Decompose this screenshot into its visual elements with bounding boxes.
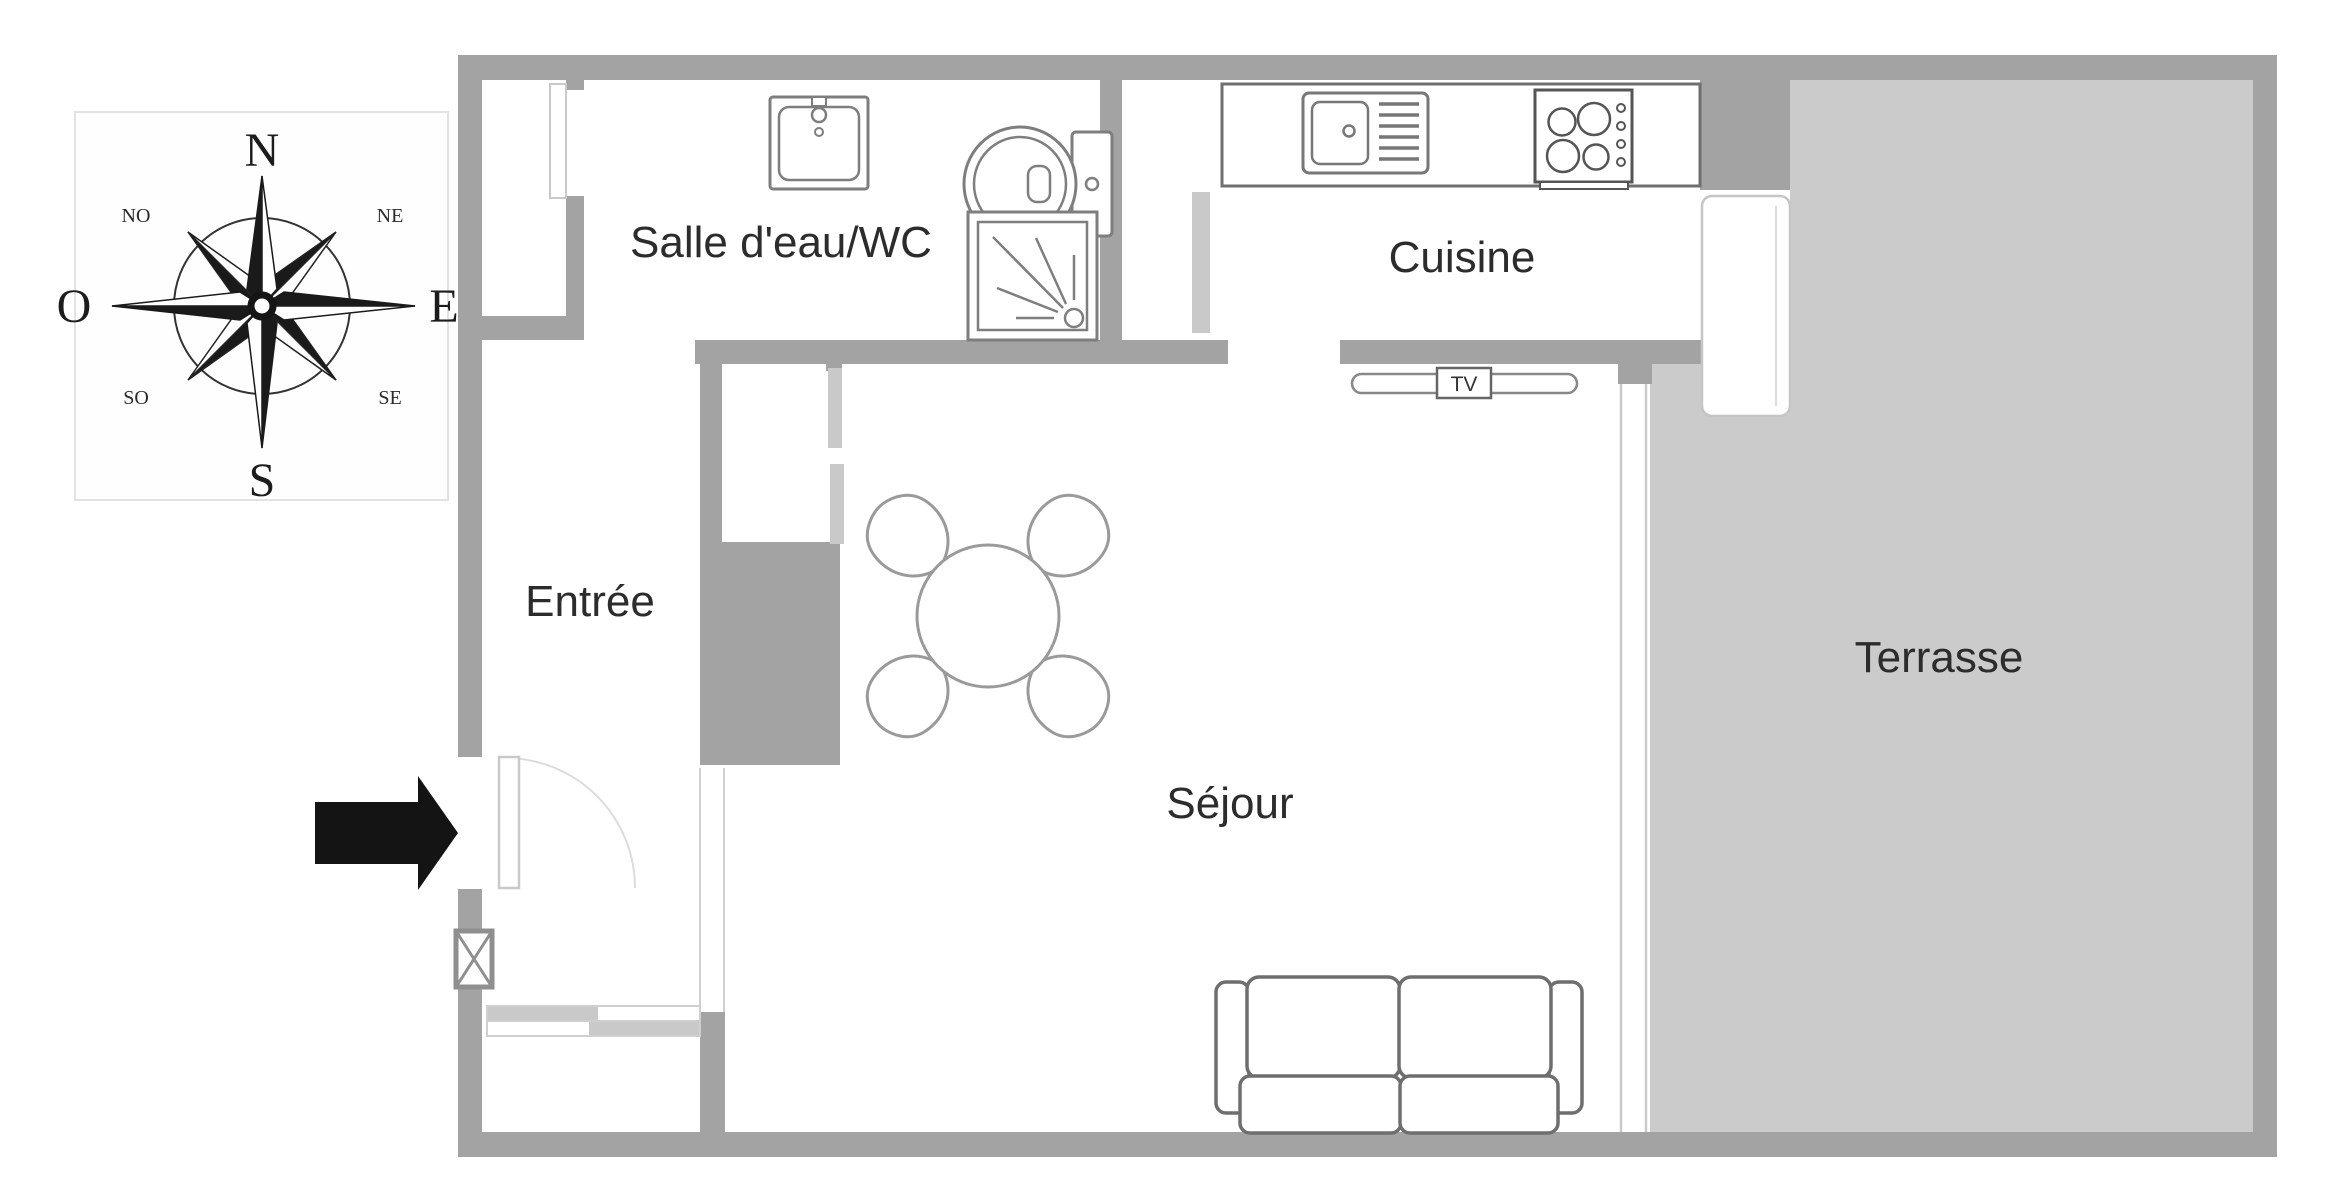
wall-closet-bottom (458, 316, 584, 340)
compass-west-label: O (57, 280, 92, 333)
kitchen-label: Cuisine (1389, 233, 1536, 282)
wall-kitchen-terrace-stub (1700, 80, 1790, 190)
wall-bathroom-bottom (695, 340, 1228, 364)
bathroom-label: Salle d'eau/WC (630, 218, 932, 267)
electrical-box-icon (456, 931, 492, 987)
compass-east-label: E (429, 280, 458, 333)
compass-ne-label: NE (377, 205, 404, 227)
entry-label: Entrée (525, 577, 655, 626)
wall-bottom (458, 1132, 2277, 1157)
wall-block (720, 542, 840, 765)
terrace-door-icon (1702, 196, 1790, 416)
floor-plan-page: TV (0, 0, 2350, 1200)
wall-entry-living-upper (700, 363, 722, 765)
wall-bay-window-tab (1618, 363, 1652, 384)
compass-nw-label: NO (122, 205, 151, 227)
dining-table-icon (917, 545, 1059, 687)
sofa-icon (1216, 977, 1582, 1133)
closet-door-leaf (550, 84, 566, 198)
compass-sw-label: SO (123, 387, 149, 409)
compass-se-label: SE (378, 387, 401, 409)
wall-left-lower (458, 987, 482, 1157)
shower-icon (968, 212, 1097, 340)
entry-door-icon (499, 757, 635, 888)
wall-closet-right (566, 196, 584, 340)
wall-left-upper (458, 55, 482, 757)
wall-top (458, 55, 2277, 80)
wall-entry-living-lower (700, 1012, 725, 1157)
living-label: Séjour (1166, 779, 1293, 828)
entry-arrow-icon (315, 776, 458, 890)
wall-left-mid (458, 889, 482, 933)
sliding-wardrobe-icon (487, 1006, 700, 1036)
bathroom-sink-icon (770, 97, 868, 189)
wall-closet-right-tab (566, 80, 584, 90)
floor-plan: TV (0, 0, 2350, 1200)
dining-set (852, 480, 1124, 752)
wall-right (2253, 55, 2277, 1157)
compass-south-label: S (249, 454, 276, 507)
tv-label: TV (1451, 373, 1478, 396)
bay-window-icon (1621, 384, 1646, 1132)
compass-north-label: N (245, 124, 280, 177)
kitchen-door-leaf (1192, 192, 1210, 333)
terrace-label: Terrasse (1855, 633, 2024, 682)
kitchen-sink-icon (1303, 93, 1428, 173)
kitchen-fixtures (1222, 84, 1700, 189)
open-passage (700, 768, 724, 1012)
compass-rose-icon: N S E O NO NE SO SE (57, 112, 459, 507)
stove-icon (1535, 90, 1632, 189)
sliding-door-leaf (828, 368, 844, 544)
